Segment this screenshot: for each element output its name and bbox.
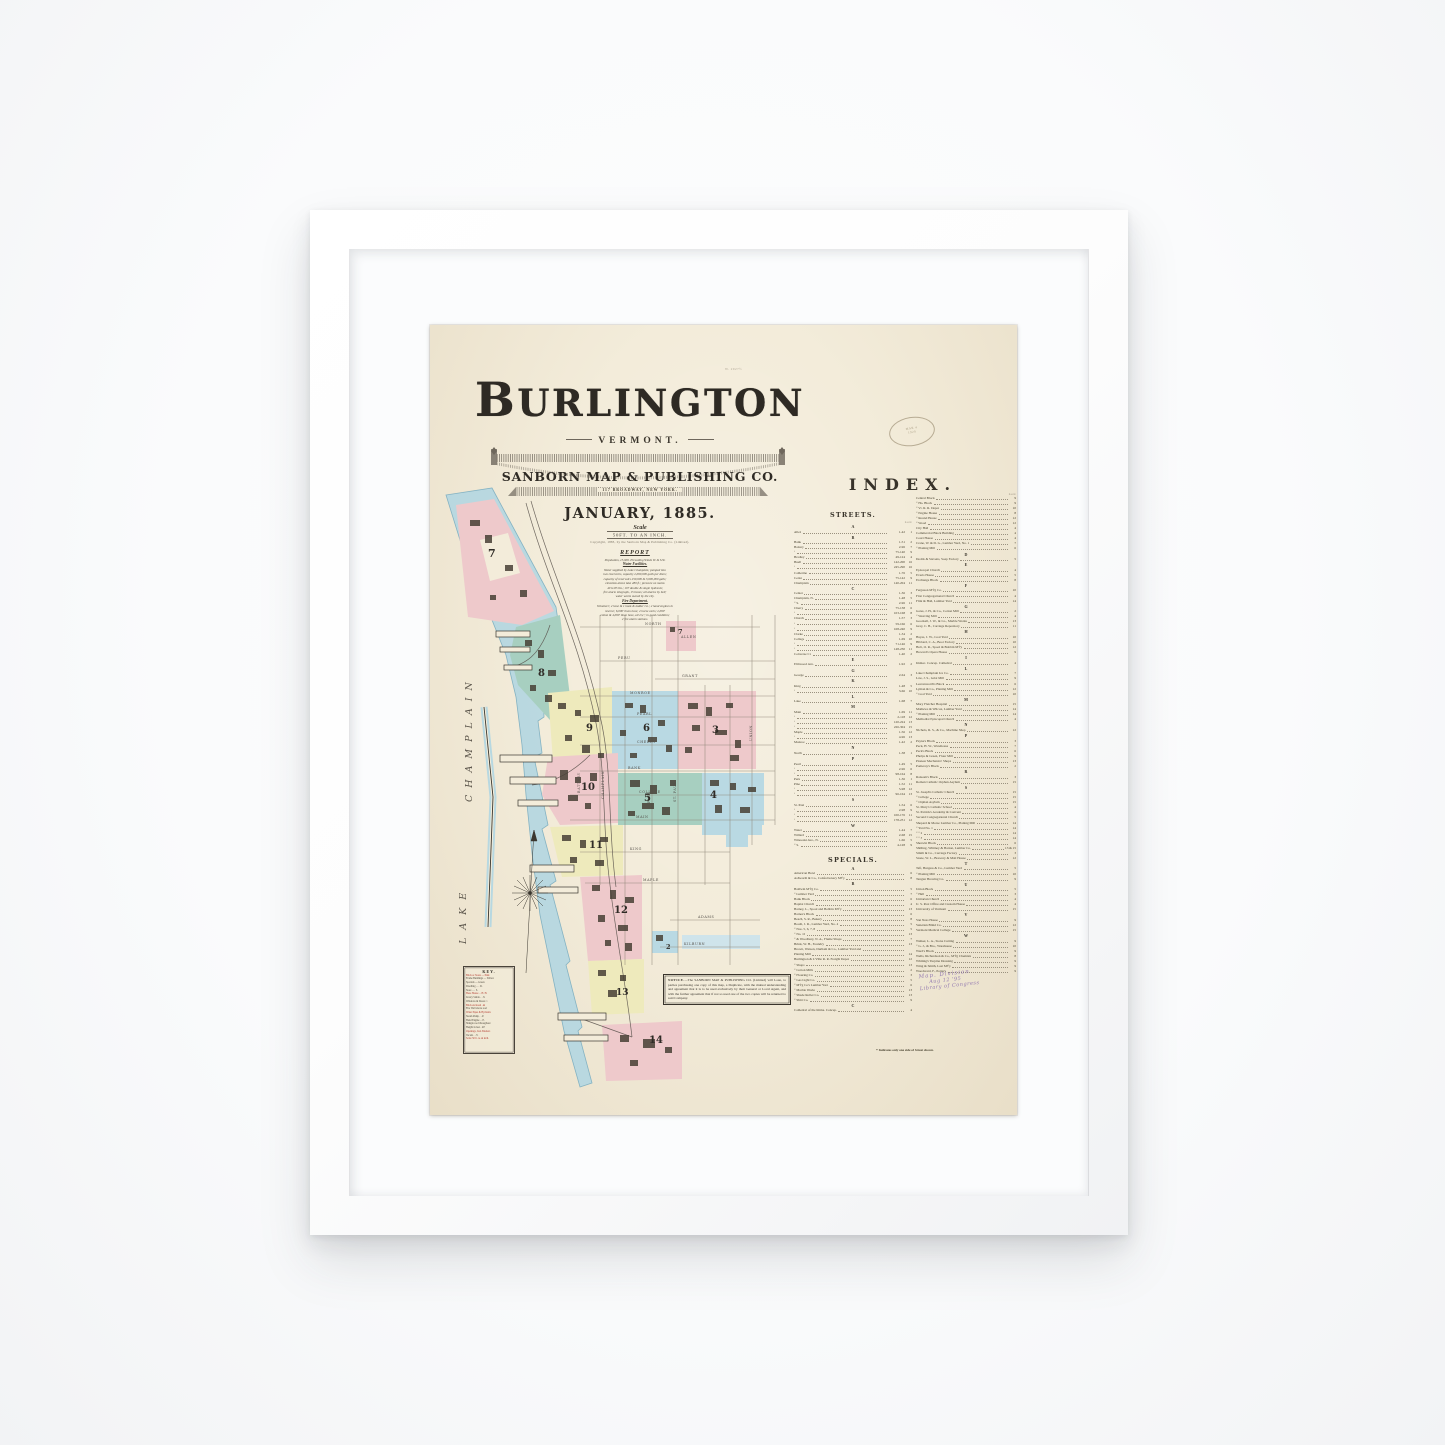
- building: [575, 710, 581, 716]
- building: [485, 535, 492, 543]
- district-number: 5: [644, 793, 651, 804]
- building: [628, 811, 635, 816]
- building: [625, 703, 633, 708]
- building: [620, 975, 626, 981]
- building: [735, 740, 741, 748]
- building: [665, 1047, 672, 1053]
- building: [530, 685, 536, 691]
- notice-box: NOTICE.—The SANBORN MAP & PUBLISHING CO.…: [663, 974, 791, 1005]
- building: [618, 925, 628, 931]
- building: [730, 783, 736, 790]
- building: [560, 770, 568, 780]
- lake-label-lake: LAKE: [458, 849, 469, 944]
- publisher-address-text: 117 BROADWAY, NEW YORK.: [598, 488, 681, 492]
- index-footnote: * Indicates only one side of Street show…: [794, 1048, 1016, 1052]
- index-left-column: STREETS. PAGE AAllen1-421BBank1-512Batte…: [794, 511, 912, 1051]
- district-number: 9: [586, 723, 593, 734]
- building: [562, 835, 571, 841]
- building: [620, 730, 626, 736]
- street-label: UNION: [749, 725, 753, 741]
- building: [525, 640, 532, 646]
- streets-heading: STREETS.: [794, 511, 912, 519]
- building: [658, 720, 665, 726]
- building: [598, 753, 604, 758]
- building: [592, 885, 600, 891]
- key-row: Scale 50 ft. to an inch.: [466, 1037, 512, 1041]
- notice-heading: NOTICE.: [668, 978, 684, 982]
- index-right-column: PAGE Central Block9“ Ho. Block9“ Vt. R. …: [916, 493, 1016, 1041]
- building: [598, 970, 606, 976]
- streets-rows: AAllen1-421BBank1-512Battery2-967“75-140…: [794, 524, 912, 849]
- building: [670, 627, 675, 632]
- building: [666, 745, 672, 752]
- district-number: 10: [581, 782, 595, 793]
- building: [605, 940, 611, 946]
- index-row: “ S.4-1289: [794, 843, 912, 848]
- building: [582, 745, 590, 753]
- map-key-box: KEY. Brick or Stone — PinkFrame Building…: [463, 966, 515, 1054]
- building: [625, 897, 634, 903]
- building: [558, 703, 566, 709]
- building: [520, 590, 527, 597]
- building: [630, 1060, 638, 1066]
- building: [726, 703, 733, 708]
- index-row: Cathedral of the Imma. Concep.4: [794, 1008, 912, 1013]
- street-label: ADAMS: [697, 915, 714, 919]
- street-label: ST. PAUL: [673, 781, 677, 802]
- street-label: CHAMPLAIN: [601, 771, 605, 799]
- district-number: 6: [643, 723, 650, 734]
- building: [715, 805, 722, 813]
- street-label: BANK: [628, 766, 641, 770]
- street-label: MAIN: [636, 815, 649, 819]
- building: [610, 890, 616, 899]
- building: [580, 840, 586, 848]
- district-number: 13: [616, 988, 629, 998]
- district-number: 2: [666, 943, 671, 951]
- street-label: CHERRY: [637, 740, 656, 744]
- street-label: MAPLE: [643, 878, 659, 882]
- street-label: NORTH: [645, 622, 661, 626]
- building: [585, 803, 591, 809]
- district-number: 7: [678, 628, 683, 636]
- street-label: KILBURN: [684, 942, 705, 946]
- street-label: PEARL: [637, 712, 652, 716]
- building: [630, 753, 637, 758]
- index-right-rows: Central Block9“ Ho. Block9“ Vt. R. R. De…: [916, 496, 1016, 974]
- building: [490, 595, 496, 600]
- building: [568, 795, 578, 801]
- building: [505, 565, 513, 571]
- building: [590, 773, 597, 781]
- building: [730, 755, 739, 761]
- building: [545, 695, 552, 702]
- street-label: PERU: [618, 656, 631, 660]
- building: [590, 715, 599, 722]
- framed-map-photo: W. 2927½ BURLINGTON VERMONT. SANBORN MAP…: [0, 0, 1445, 1445]
- lake-label-champlain: CHAMPLAIN: [464, 637, 475, 802]
- district-number: 14: [649, 1035, 663, 1046]
- building: [662, 807, 670, 815]
- building: [565, 735, 572, 741]
- specials-rows: AAmerican Hotel6Ashworth & Co., Confecti…: [794, 866, 912, 1014]
- publisher-name: SANBORN MAP & PUBLISHING CO.: [430, 469, 850, 484]
- district-number: 3: [712, 725, 719, 736]
- building: [656, 935, 663, 941]
- building: [740, 807, 750, 813]
- district-number: 8: [538, 668, 545, 679]
- street-label: GRANT: [682, 674, 698, 678]
- building: [625, 943, 632, 951]
- building: [710, 780, 719, 786]
- street-label: MONROE: [630, 691, 651, 695]
- building: [630, 780, 640, 787]
- building: [748, 787, 756, 792]
- building: [692, 725, 700, 731]
- building: [538, 650, 544, 658]
- district-number: 7: [488, 547, 496, 560]
- building: [620, 1035, 629, 1042]
- notice-text: —The SANBORN MAP & PUBLISHING CO. (Limit…: [668, 978, 786, 1000]
- street-label: KING: [630, 847, 642, 851]
- key-rows: Brick or Stone — PinkFrame Buildings — Y…: [466, 974, 512, 1042]
- building: [548, 670, 556, 676]
- building: [595, 860, 604, 866]
- specials-heading: SPECIALS.: [794, 856, 912, 864]
- building: [570, 857, 577, 863]
- building: [706, 707, 712, 716]
- breakwater: [484, 707, 493, 927]
- building: [685, 747, 692, 753]
- publisher-address: 117 BROADWAY, NEW YORK.: [430, 488, 850, 492]
- district-number: 4: [710, 790, 717, 801]
- district-number: 12: [614, 905, 628, 916]
- map-sheet: W. 2927½ BURLINGTON VERMONT. SANBORN MAP…: [430, 325, 1017, 1115]
- building: [470, 520, 480, 526]
- building: [688, 703, 698, 709]
- building: [598, 915, 605, 922]
- district-number: 11: [589, 840, 603, 851]
